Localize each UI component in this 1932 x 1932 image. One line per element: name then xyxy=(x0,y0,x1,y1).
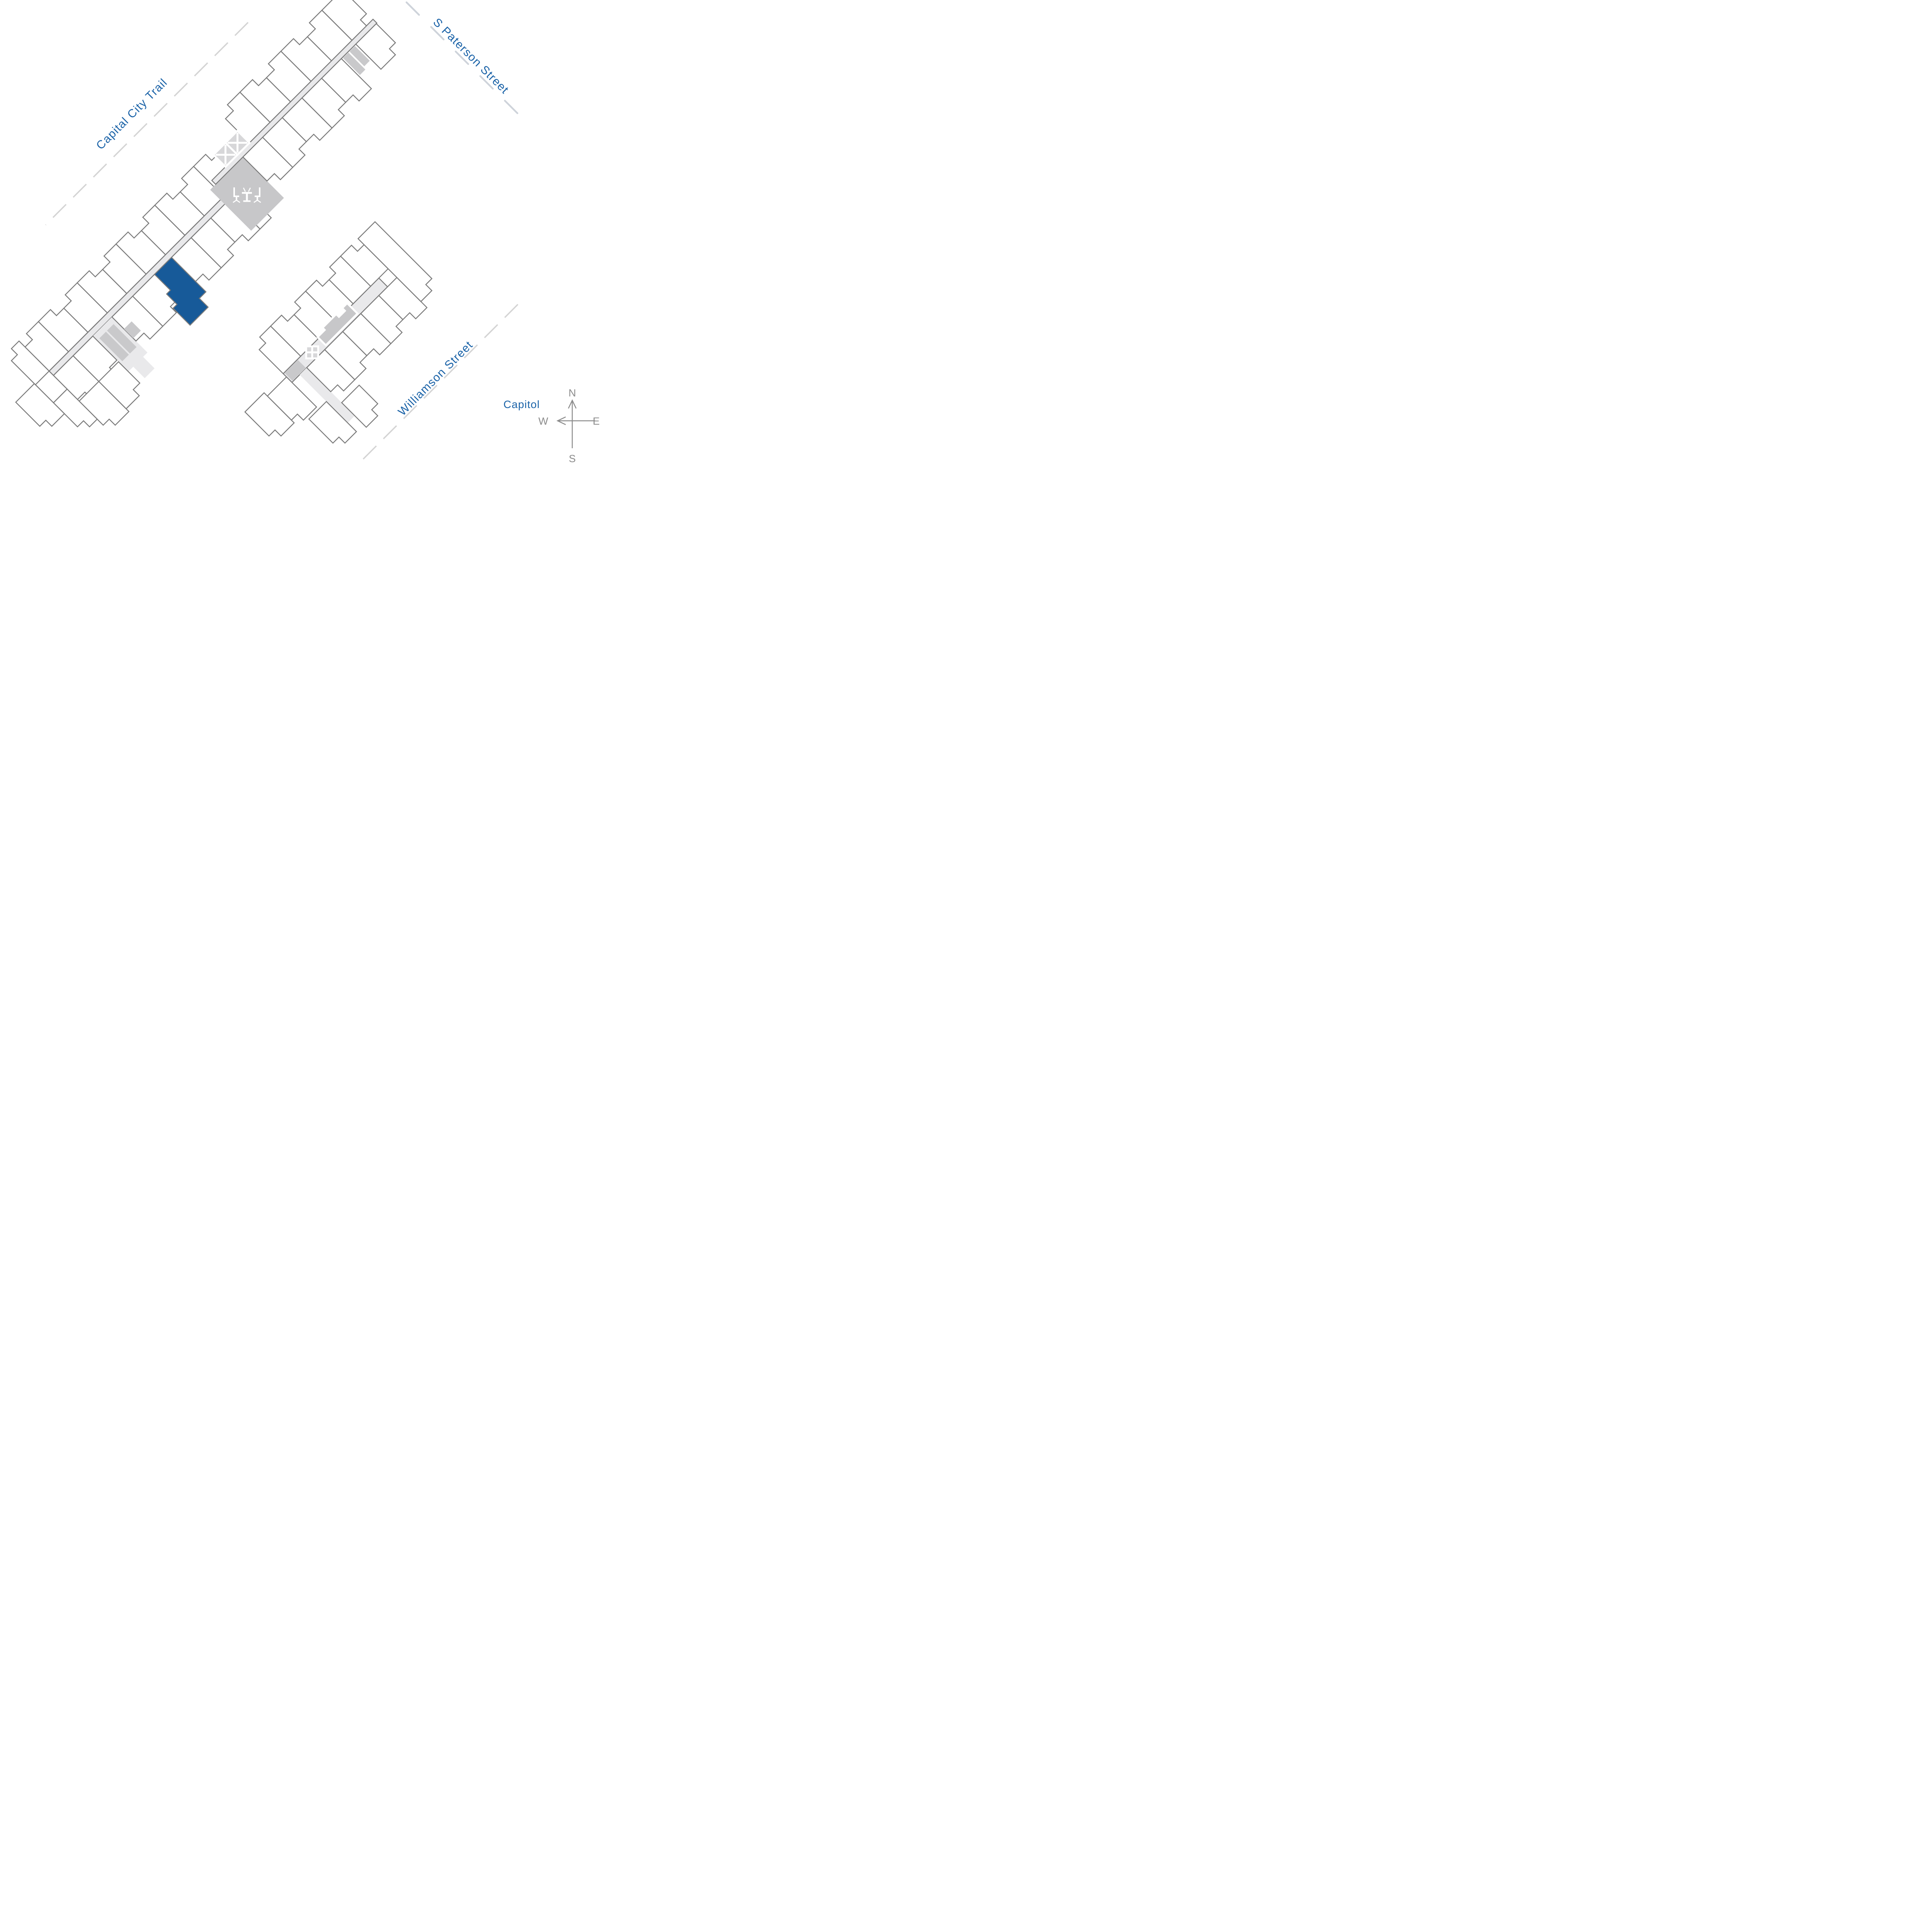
building-south xyxy=(215,222,473,464)
compass-letter-n: N xyxy=(568,387,576,399)
s-paterson-street-line xyxy=(406,2,529,124)
corridor xyxy=(49,176,249,376)
site-plan-page: Capital City Trail S Paterson Street Wil… xyxy=(0,0,600,464)
street-label-capital-city-trail: Capital City Trail xyxy=(94,76,170,152)
compass-rose: N S W E xyxy=(538,387,600,464)
street-label-williamson: Williamson Street xyxy=(396,338,475,418)
compass-letter-s: S xyxy=(569,453,576,464)
compass-letter-w: W xyxy=(538,415,548,427)
compass-letter-e: E xyxy=(593,415,600,427)
site-plan-svg: Capital City Trail S Paterson Street Wil… xyxy=(0,0,600,464)
street-label-s-paterson: S Paterson Street xyxy=(430,16,511,97)
landmark-label-capitol: Capitol xyxy=(503,398,540,410)
